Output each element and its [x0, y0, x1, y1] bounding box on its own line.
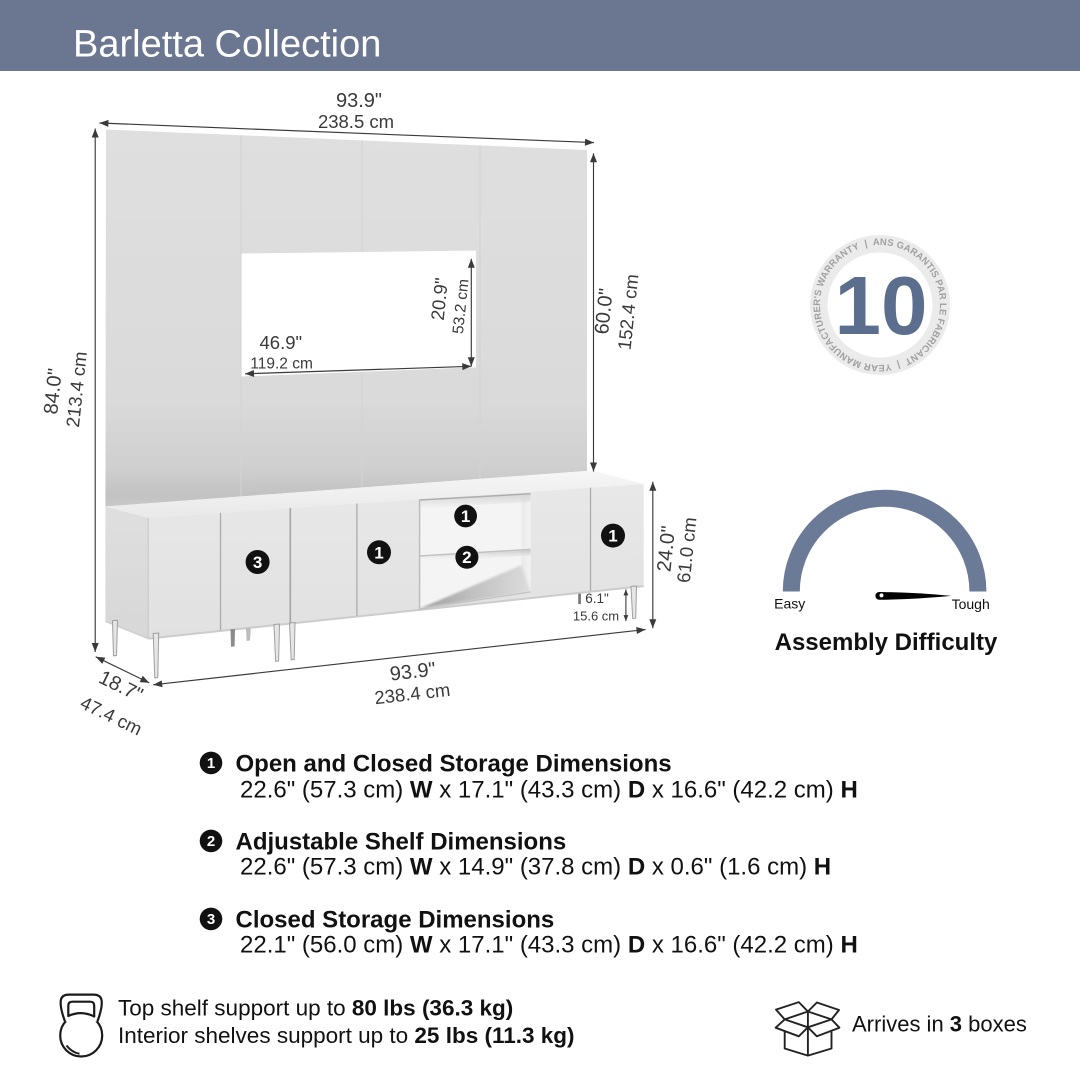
svg-text:10: 10 [835, 259, 928, 352]
svg-text:Easy: Easy [774, 595, 805, 611]
svg-text:15.6 cm: 15.6 cm [573, 609, 619, 624]
svg-text:2: 2 [207, 833, 215, 850]
svg-text:46.9": 46.9" [260, 332, 303, 353]
svg-text:22.1" (56.0 cm) W x 17.1" (43.: 22.1" (56.0 cm) W x 17.1" (43.3 cm) D x … [240, 932, 858, 959]
svg-text:1: 1 [207, 755, 215, 772]
svg-text:Barletta Collection: Barletta Collection [73, 24, 381, 66]
svg-text:6.1": 6.1" [585, 591, 609, 606]
svg-text:3: 3 [253, 553, 262, 572]
svg-text:238.4 cm: 238.4 cm [373, 679, 451, 708]
svg-text:119.2 cm: 119.2 cm [250, 355, 313, 372]
svg-text:Adjustable Shelf Dimensions: Adjustable Shelf Dimensions [236, 829, 567, 856]
svg-text:Arrives in 3 boxes: Arrives in 3 boxes [852, 1012, 1027, 1037]
svg-text:Open and Closed Storage Dimens: Open and Closed Storage Dimensions [236, 751, 672, 778]
svg-text:Top shelf support up to 80 lb: Top shelf support up to 80 lbs (36.3 kg) [118, 996, 513, 1021]
svg-text:Assembly Difficulty: Assembly Difficulty [775, 629, 998, 656]
svg-text:20.9": 20.9" [427, 277, 452, 322]
svg-text:60.0": 60.0" [591, 287, 618, 335]
svg-text:2: 2 [462, 548, 471, 567]
svg-text:1: 1 [608, 527, 617, 546]
svg-text:93.9": 93.9" [336, 90, 382, 112]
svg-text:Closed Storage Dimensions: Closed Storage Dimensions [236, 907, 555, 934]
svg-text:152.4 cm: 152.4 cm [614, 273, 643, 351]
svg-text:84.0": 84.0" [40, 367, 67, 415]
svg-text:238.5 cm: 238.5 cm [318, 111, 394, 132]
svg-text:22.6" (57.3 cm) W x 17.1" (43.: 22.6" (57.3 cm) W x 17.1" (43.3 cm) D x … [240, 777, 858, 804]
svg-text:61.0 cm: 61.0 cm [673, 516, 701, 584]
svg-text:22.6" (57.3 cm) W x 14.9" (37.: 22.6" (57.3 cm) W x 14.9" (37.8 cm) D x … [240, 854, 831, 881]
svg-text:Interior shelves support up to: Interior shelves support up to 25 lbs (1… [118, 1023, 575, 1048]
svg-text:3: 3 [207, 911, 215, 928]
svg-text:Tough: Tough [952, 596, 990, 612]
svg-text:1: 1 [374, 543, 383, 562]
svg-text:1: 1 [461, 507, 470, 526]
svg-text:213.4 cm: 213.4 cm [62, 350, 91, 428]
